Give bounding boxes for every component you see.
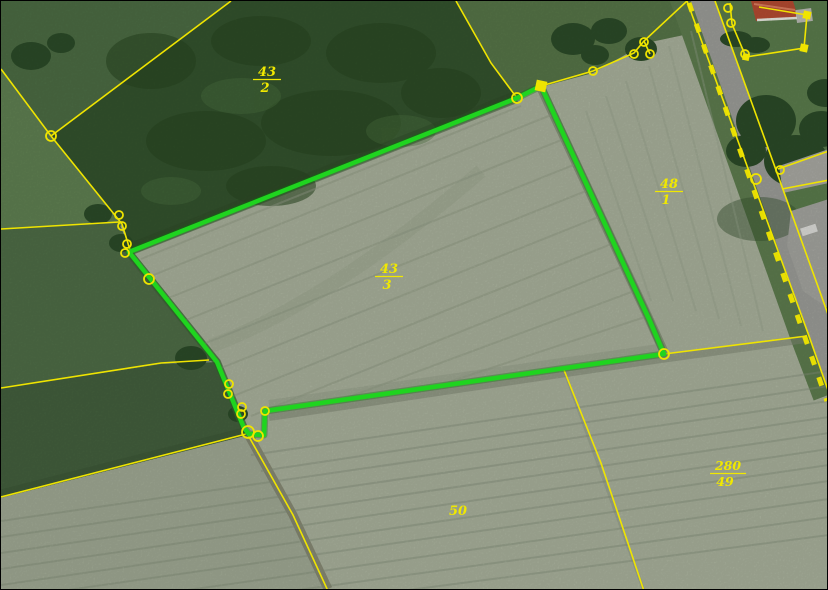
parcel-label-numerator: 280 [714,458,741,473]
parcel-label-denominator: 1 [661,193,670,208]
square-marker-icon [803,11,810,18]
square-marker-icon [800,44,807,51]
parcel-label-number: 50 [449,504,467,519]
aerial-imagery-layer [1,1,828,590]
parcel-label-50: 50 [449,504,467,519]
parcel-label-denominator: 2 [259,81,269,96]
square-marker-icon [536,81,547,92]
square-marker-icon [743,54,749,60]
aerial-map-canvas[interactable]: 43 2 43 3 48 1 280 49 50 [1,1,828,590]
parcel-label-denominator: 49 [716,474,734,489]
map-viewport[interactable]: 43 2 43 3 48 1 280 49 50 [0,0,828,590]
parcel-label-numerator: 43 [258,65,276,80]
photo-grain [1,1,828,590]
parcel-label-denominator: 3 [382,278,391,293]
parcel-label-numerator: 48 [660,177,678,192]
parcel-label-numerator: 43 [380,262,398,277]
